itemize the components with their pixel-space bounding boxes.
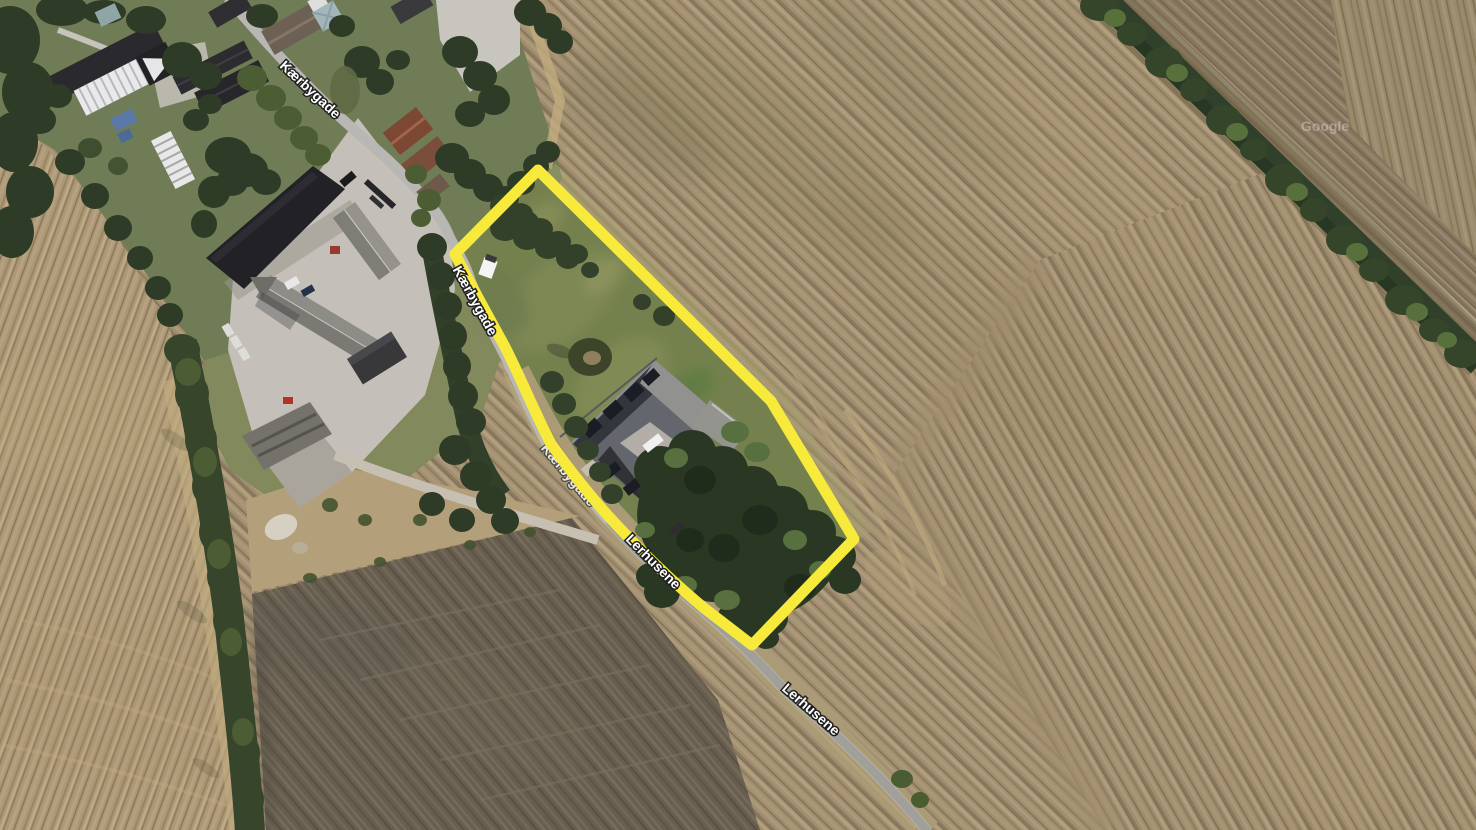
svg-text:Google: Google bbox=[1301, 118, 1349, 134]
